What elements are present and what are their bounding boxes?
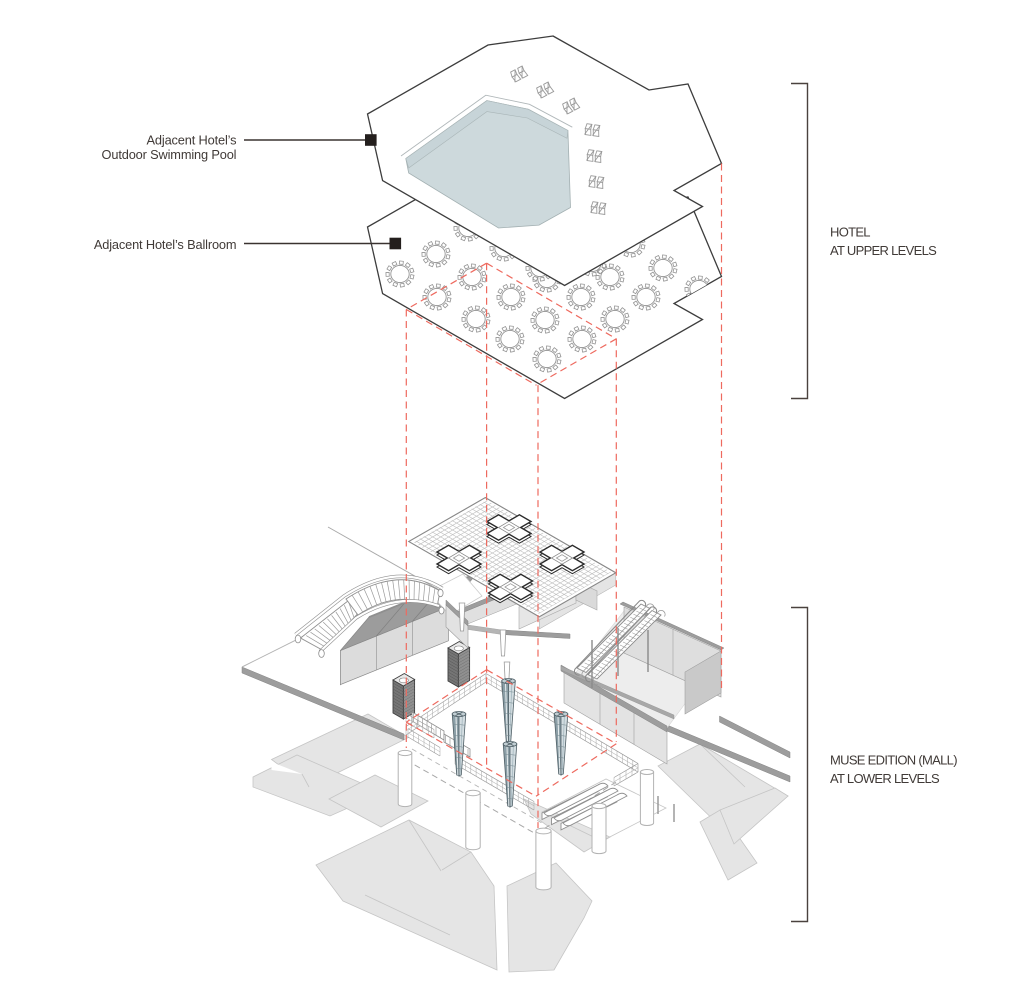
svg-text:Adjacent Hotel’s Ballroom: Adjacent Hotel’s Ballroom [94,237,237,252]
svg-text:AT LOWER LEVELS: AT LOWER LEVELS [830,771,940,786]
svg-text:Adjacent Hotel’s: Adjacent Hotel’s [147,132,237,147]
svg-text:HOTEL: HOTEL [830,225,870,240]
svg-text:Outdoor Swimming Pool: Outdoor Swimming Pool [102,147,237,162]
svg-text:AT UPPER LEVELS: AT UPPER LEVELS [830,243,937,258]
svg-text:MUSE EDITION (MALL): MUSE EDITION (MALL) [830,753,957,768]
